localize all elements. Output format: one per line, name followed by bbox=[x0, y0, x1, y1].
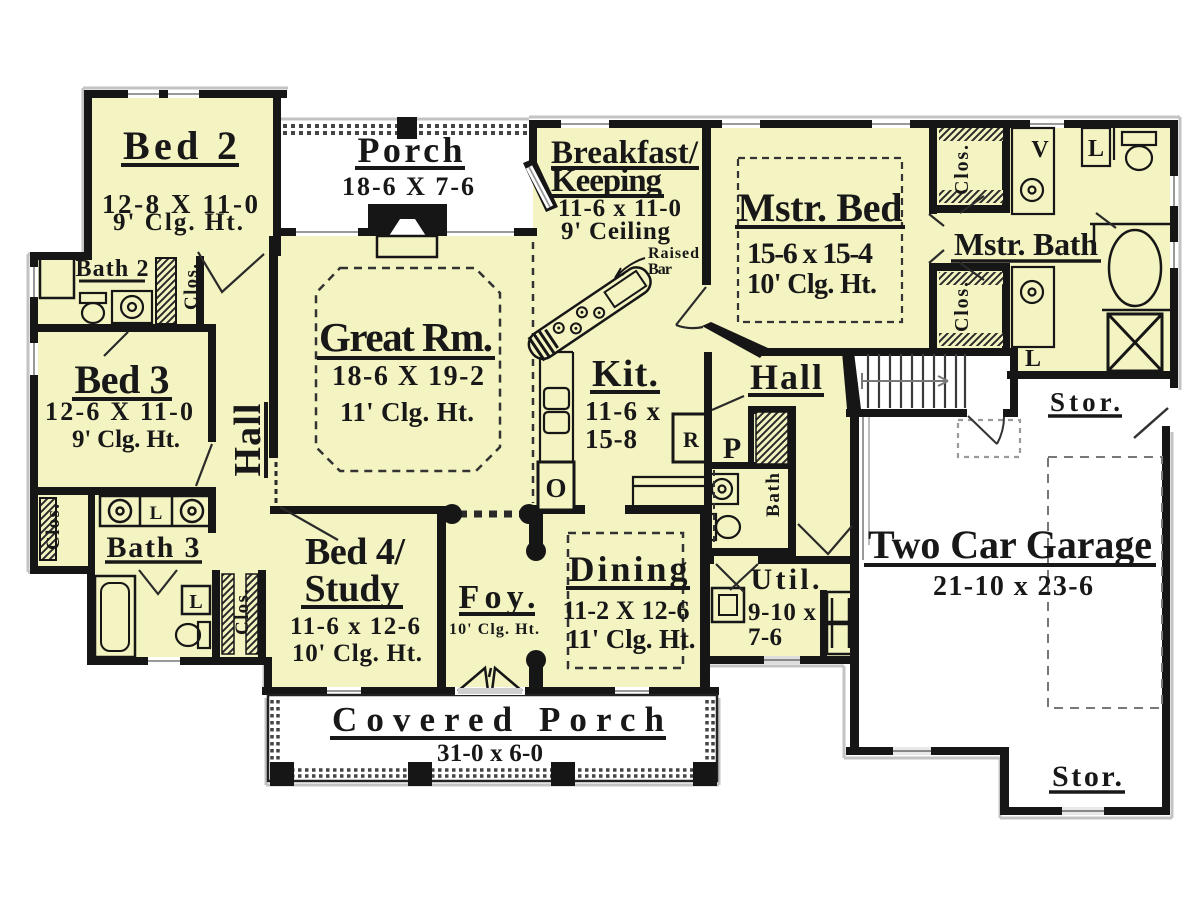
svg-text:18-6 X 19-2: 18-6 X 19-2 bbox=[332, 361, 484, 392]
svg-text:Keeping: Keeping bbox=[551, 163, 663, 199]
svg-text:Mstr. Bed: Mstr. Bed bbox=[738, 185, 903, 230]
svg-text:L: L bbox=[1025, 346, 1041, 372]
svg-text:7-6: 7-6 bbox=[748, 624, 782, 651]
svg-text:L: L bbox=[1088, 136, 1104, 162]
svg-text:Mstr. Bath: Mstr. Bath bbox=[954, 226, 1098, 262]
svg-text:Hall: Hall bbox=[750, 357, 822, 397]
svg-text:18-6 X 7-6: 18-6 X 7-6 bbox=[342, 172, 474, 201]
svg-text:31-0 x 6-0: 31-0 x 6-0 bbox=[437, 740, 543, 767]
svg-text:9-10 x: 9-10 x bbox=[748, 599, 817, 626]
svg-text:Raised: Raised bbox=[648, 245, 699, 262]
svg-text:P: P bbox=[723, 432, 741, 465]
svg-text:Kit.: Kit. bbox=[592, 353, 658, 395]
svg-text:Hall: Hall bbox=[227, 404, 269, 477]
svg-text:Porch: Porch bbox=[358, 130, 463, 170]
svg-text:9' Clg. Ht.: 9' Clg. Ht. bbox=[113, 209, 243, 236]
svg-text:Two Car Garage: Two Car Garage bbox=[868, 522, 1152, 567]
svg-text:12-6 X 11-0: 12-6 X 11-0 bbox=[45, 397, 193, 426]
svg-text:10' Clg. Ht.: 10' Clg. Ht. bbox=[747, 269, 877, 300]
svg-text:Bed 3: Bed 3 bbox=[75, 357, 170, 402]
svg-text:Clos.: Clos. bbox=[181, 264, 202, 310]
svg-text:Study: Study bbox=[305, 568, 400, 610]
svg-text:O: O bbox=[545, 473, 566, 503]
svg-text:10' Clg. Ht.: 10' Clg. Ht. bbox=[292, 640, 422, 667]
svg-text:11-6 x 12-6: 11-6 x 12-6 bbox=[290, 613, 420, 640]
svg-text:11-2 X 12-6: 11-2 X 12-6 bbox=[563, 596, 690, 625]
svg-text:Clos.: Clos. bbox=[43, 504, 64, 550]
svg-text:Bath 2: Bath 2 bbox=[76, 256, 149, 282]
svg-text:Bar: Bar bbox=[648, 261, 672, 278]
svg-text:Clos.: Clos. bbox=[232, 589, 253, 635]
svg-text:10' Clg. Ht.: 10' Clg. Ht. bbox=[449, 621, 539, 638]
svg-text:9' Clg. Ht.: 9' Clg. Ht. bbox=[72, 426, 180, 453]
svg-text:Clos.: Clos. bbox=[951, 282, 973, 332]
svg-text:Dining: Dining bbox=[569, 549, 688, 589]
svg-text:Clos.: Clos. bbox=[951, 145, 973, 195]
svg-text:Bed 2: Bed 2 bbox=[123, 123, 237, 168]
svg-text:9' Ceiling: 9' Ceiling bbox=[561, 218, 671, 245]
svg-text:L: L bbox=[189, 591, 202, 613]
svg-text:V: V bbox=[1031, 137, 1049, 163]
svg-text:L: L bbox=[150, 503, 163, 524]
svg-text:Bath: Bath bbox=[763, 473, 784, 517]
svg-text:11-6 x: 11-6 x bbox=[585, 396, 661, 426]
svg-text:R: R bbox=[683, 427, 700, 452]
svg-text:Great Rm.: Great Rm. bbox=[319, 314, 493, 360]
svg-text:15-8: 15-8 bbox=[585, 424, 637, 454]
svg-text:Bed 4/: Bed 4/ bbox=[305, 531, 405, 573]
svg-text:21-10 x 23-6: 21-10 x 23-6 bbox=[933, 571, 1093, 602]
svg-text:11' Clg. Ht.: 11' Clg. Ht. bbox=[567, 624, 696, 654]
svg-text:11' Clg. Ht.: 11' Clg. Ht. bbox=[340, 397, 474, 427]
svg-text:Stor.: Stor. bbox=[1052, 760, 1122, 793]
svg-text:15-6 x 15-4: 15-6 x 15-4 bbox=[747, 237, 873, 270]
svg-text:Bath 3: Bath 3 bbox=[107, 531, 200, 564]
